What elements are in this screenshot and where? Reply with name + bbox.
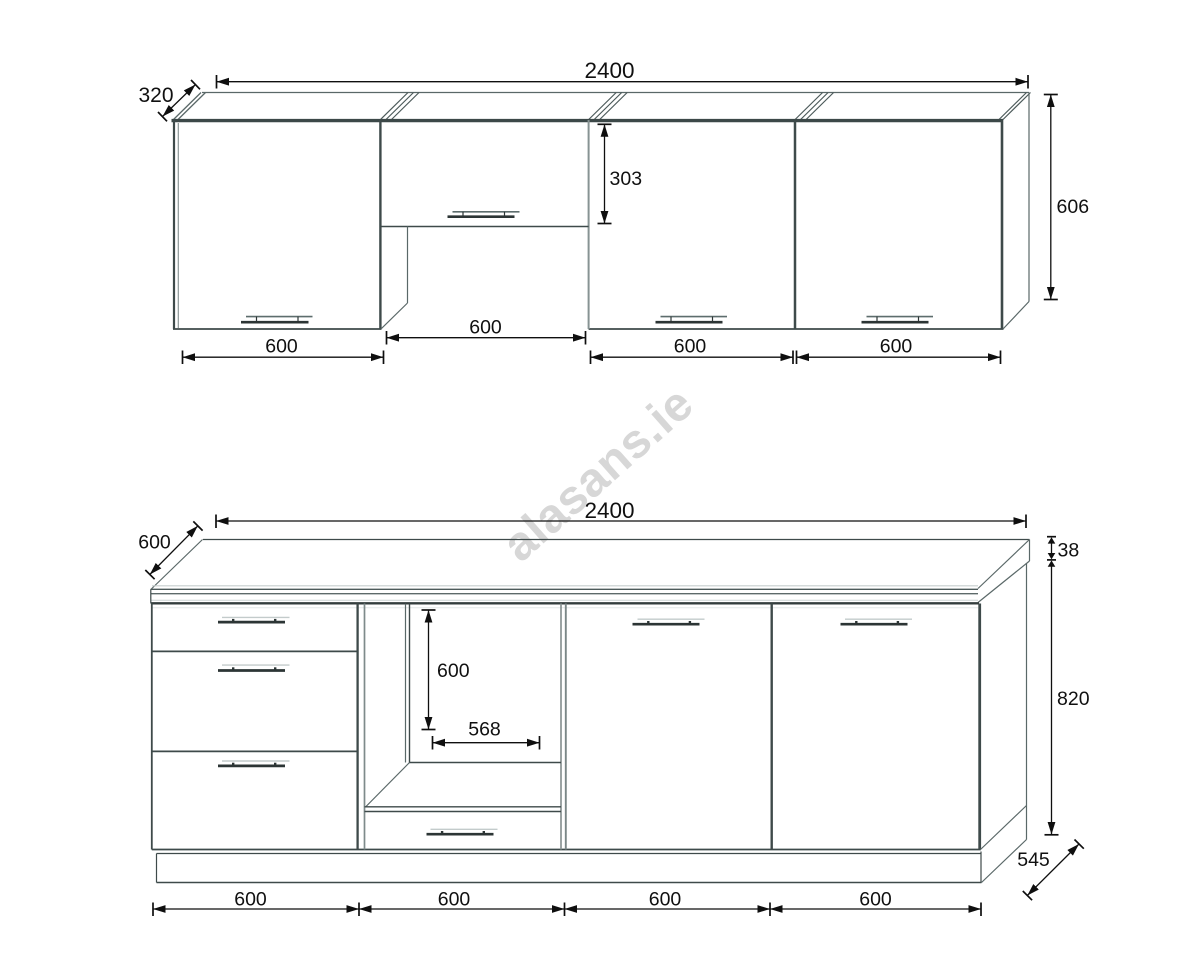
svg-text:2400: 2400 xyxy=(584,498,634,523)
svg-text:600: 600 xyxy=(859,889,892,911)
svg-text:alasans.ie: alasans.ie xyxy=(493,377,704,572)
svg-text:600: 600 xyxy=(234,889,267,911)
svg-text:600: 600 xyxy=(265,336,298,358)
svg-text:303: 303 xyxy=(610,168,643,190)
svg-text:320: 320 xyxy=(138,84,173,107)
svg-text:820: 820 xyxy=(1057,688,1090,710)
svg-text:600: 600 xyxy=(438,889,471,911)
svg-text:600: 600 xyxy=(437,660,470,682)
svg-text:600: 600 xyxy=(880,336,913,358)
svg-text:600: 600 xyxy=(649,889,682,911)
svg-text:38: 38 xyxy=(1058,540,1080,562)
svg-text:600: 600 xyxy=(469,317,502,339)
svg-text:606: 606 xyxy=(1057,196,1090,218)
svg-text:568: 568 xyxy=(468,719,501,741)
svg-text:600: 600 xyxy=(138,532,171,554)
svg-text:545: 545 xyxy=(1017,849,1050,871)
svg-text:600: 600 xyxy=(674,336,707,358)
svg-text:2400: 2400 xyxy=(584,58,634,83)
